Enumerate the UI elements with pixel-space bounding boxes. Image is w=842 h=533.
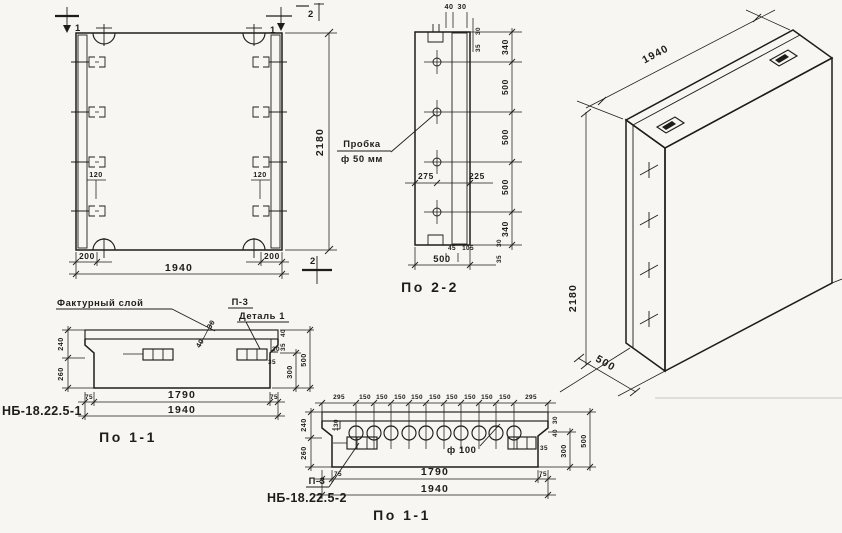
dim-1790: 1790 — [168, 389, 196, 401]
plug-label-line1: Пробка — [343, 138, 381, 149]
marker-digit: 1 — [270, 24, 276, 35]
front-bottom-dims: 200 200 1940 — [69, 251, 289, 279]
marker-digit: 2 — [310, 255, 316, 266]
p3-label: П-3 — [232, 296, 249, 307]
detail-label: Деталь 1 — [239, 310, 285, 321]
dim-rot-35b: 35 — [496, 255, 503, 263]
iso-main-face — [665, 58, 832, 371]
facing-layer — [85, 330, 278, 339]
embed-plates — [333, 437, 536, 449]
dim-500: 500 — [433, 253, 450, 264]
dim-30: 30 — [458, 2, 467, 11]
s11b-top-dims: 295 150 150 150 150 150 150 150 150 150 … — [315, 394, 556, 412]
s11a-right-dims: 30 35 40 35 300 500 — [268, 326, 314, 392]
dim-240: 240 — [299, 418, 308, 432]
dim-500: 500 — [299, 353, 308, 367]
isometric-view: 1940 2180 500 — [560, 10, 842, 398]
s11b-right-dims: 35 30 40 300 500 — [538, 408, 596, 471]
iso-anchor-marks — [640, 162, 658, 327]
iso-edge-face — [626, 120, 665, 371]
chain-dim: 500 — [500, 179, 510, 195]
sec22-mid-dims: 275 225 — [405, 171, 493, 186]
dim-150: 150 — [499, 394, 511, 401]
bottom-recess — [428, 235, 443, 245]
section-marker-1-left: 1 — [55, 7, 81, 33]
leader-line — [246, 322, 260, 349]
dim-105: 105 — [462, 245, 474, 252]
dim-300: 300 — [559, 444, 568, 458]
panel-code-2: НБ-18.22.5-2 — [267, 491, 347, 505]
dim-295: 295 — [333, 394, 345, 401]
iso-facing-strip-top — [626, 30, 800, 125]
dim-300: 300 — [285, 365, 294, 379]
s11b-left-dims: 130 240 260 — [299, 408, 340, 471]
dim-1940: 1940 — [421, 483, 449, 495]
lifting-hooks — [93, 24, 265, 258]
chain-dim: 500 — [500, 79, 510, 95]
dim-150: 150 — [429, 394, 441, 401]
dim-rot-30: 30 — [552, 416, 559, 424]
detail-callout: П-3 Деталь 1 — [228, 296, 289, 349]
marker-digit: 1 — [75, 22, 81, 33]
panel-outline — [76, 33, 282, 250]
dim-150: 150 — [446, 394, 458, 401]
s11a-bottom-dims: 75 1790 75 1940 — [78, 389, 285, 420]
hole-row — [349, 404, 521, 449]
dim-30: 30 — [272, 346, 280, 353]
embed-plates — [123, 349, 267, 360]
chain-dim: 340 — [500, 221, 510, 237]
dim-rot-30b: 30 — [496, 239, 503, 247]
dim-150: 150 — [376, 394, 388, 401]
dim-35: 35 — [268, 359, 276, 366]
dim-1940: 1940 — [168, 404, 196, 416]
dim-130: 130 — [333, 419, 340, 431]
dim-225: 225 — [469, 171, 485, 181]
dim-150: 150 — [481, 394, 493, 401]
dim-35: 35 — [540, 445, 548, 452]
facing-layer-left-edge — [78, 35, 87, 248]
plug-holes — [424, 50, 450, 224]
dim-75-left: 75 — [85, 394, 93, 401]
section-marker-1-right: 1 — [266, 7, 292, 35]
dim-240: 240 — [56, 337, 65, 351]
dim-45: 45 — [448, 245, 456, 252]
chain-dim: 500 — [500, 129, 510, 145]
panel-working-drawing: 120 120 200 200 1940 2180 1 — [0, 0, 842, 533]
plug-callout: Пробка ф 50 мм — [337, 114, 435, 164]
dim-height: 2180 — [314, 128, 326, 156]
section-1-1-panel-1-view: Фактурный слой П-3 Деталь 1 40 30 240 26… — [2, 296, 314, 445]
panel-code-1: НБ-18.22.5-1 — [2, 404, 82, 418]
s11b-bottom-dims: 75 1790 75 1940 — [315, 466, 556, 499]
dim-40: 40 — [445, 2, 454, 11]
dim-rot-30: 30 — [475, 27, 482, 35]
dim-anchor-offset-left: 120 — [89, 170, 103, 179]
thickness-diagonal-dims: 40 30 — [194, 318, 217, 349]
chain-dim: 340 — [500, 39, 510, 55]
front-elevation-view: 120 120 200 200 1940 2180 1 — [55, 3, 337, 284]
hole-label: ф 100 — [447, 444, 476, 455]
dim-rot-35: 35 — [280, 343, 287, 351]
dim-total-width: 1940 — [165, 262, 193, 274]
blueprint-page: 120 120 200 200 1940 2180 1 — [0, 0, 842, 533]
top-recess — [428, 32, 443, 42]
dim-295: 295 — [525, 394, 537, 401]
iso-height-dim: 2180 — [560, 109, 630, 392]
anchor-embeds — [71, 57, 287, 216]
section-marker-2-bottom: 2 — [302, 255, 332, 284]
dim-depth: 500 — [593, 353, 617, 374]
iso-facing-strip-edge — [626, 120, 633, 348]
dim-500: 500 — [579, 434, 588, 448]
sec22-chain-dims: 340 500 500 500 340 — [450, 28, 522, 250]
facing-layer-right-edge — [271, 35, 280, 248]
plug-label-line2: ф 50 мм — [341, 153, 383, 164]
section-2-2-title: По 2-2 — [401, 279, 459, 295]
section-body — [85, 339, 278, 388]
section-1-1-panel-2-view: 295 150 150 150 150 150 150 150 150 150 … — [267, 394, 596, 523]
section-1-1-title-b: По 1-1 — [373, 507, 431, 523]
dim-150: 150 — [464, 394, 476, 401]
dim-1790: 1790 — [421, 466, 449, 478]
front-height-dim: 2180 — [285, 29, 337, 254]
dim-260: 260 — [56, 367, 65, 381]
section-marker-2-top: 2 — [296, 3, 324, 21]
section-1-1-title-a: По 1-1 — [99, 429, 157, 445]
section-2-2-view: Пробка ф 50 мм 40 30 35 30 340 — [337, 2, 522, 295]
facing-label: Фактурный слой — [57, 297, 144, 308]
iso-length-dim: 1940 — [577, 10, 790, 119]
dim-height: 2180 — [567, 284, 579, 312]
leader-line — [329, 443, 359, 487]
leader-line — [391, 114, 435, 152]
dim-75-left: 75 — [334, 471, 342, 478]
dim-length: 1940 — [640, 42, 671, 66]
section-body-outline — [415, 32, 470, 245]
dim-150: 150 — [394, 394, 406, 401]
s11a-left-dims: 240 260 — [56, 326, 94, 392]
dim-260: 260 — [299, 446, 308, 460]
facing-callout: Фактурный слой — [56, 297, 215, 331]
dim-150: 150 — [359, 394, 371, 401]
dim-200-left: 200 — [79, 251, 95, 261]
sec22-top-dims: 40 30 35 30 — [445, 2, 483, 52]
dim-anchor-offset-right: 120 — [253, 170, 267, 179]
dim-150: 150 — [411, 394, 423, 401]
dim-rot-35: 35 — [475, 44, 482, 52]
dim-75-right: 75 — [539, 471, 547, 478]
marker-digit: 2 — [308, 8, 314, 19]
dim-rot-40: 40 — [552, 429, 559, 437]
p3-label: П-3 — [309, 475, 326, 486]
dim-75-right: 75 — [270, 394, 278, 401]
dim-275: 275 — [418, 171, 434, 181]
dim-200-right: 200 — [264, 251, 280, 261]
